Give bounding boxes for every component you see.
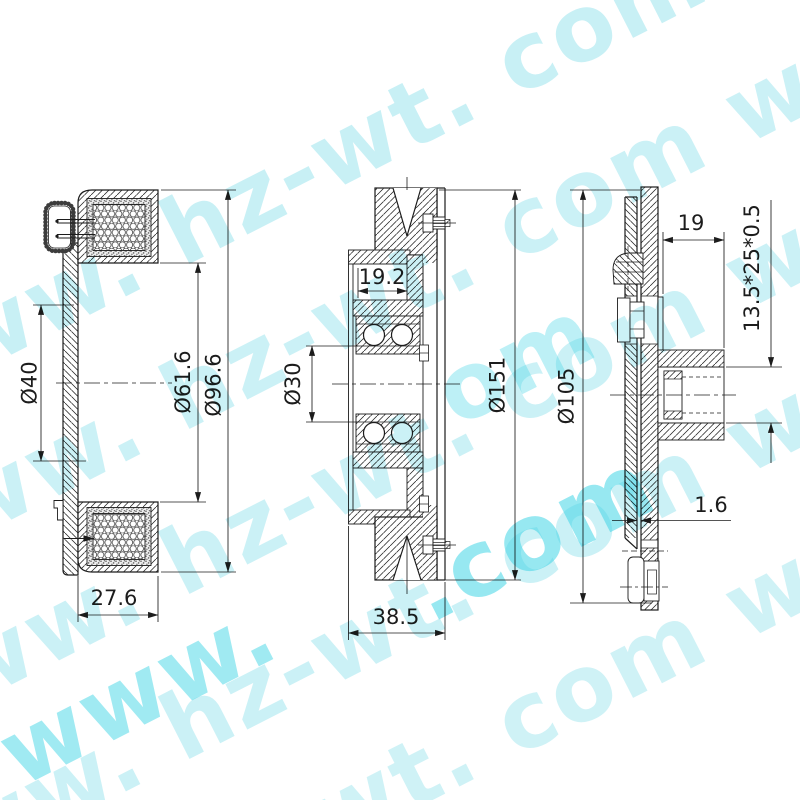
disc-rivet-bottom [418,536,456,554]
coil-view: Ø40 Ø61.6 Ø96.6 27.6 [18,190,237,622]
back-plate [625,197,637,549]
dim-hub-spline: 13.5*25*0.5 [740,204,764,332]
dim-coil-inner: Ø61.6 [171,350,195,413]
dim-pulley-outer: Ø151 [486,357,510,414]
hub-view: Ø105 19 13.5*25*0.5 1.6 [555,187,783,610]
balance-weight [613,246,643,291]
dim-hub-outer: Ø105 [555,368,579,425]
dim-coil-bore: Ø40 [18,361,42,404]
dim-hub-depth: 19 [678,211,705,235]
pulley-view: 19.2 Ø30 Ø151 38.5 [281,177,521,640]
drawing-canvas: Ø40 Ø61.6 Ø96.6 27.6 [0,0,800,800]
bearing-bottom [356,414,420,452]
dim-pulley-width: 38.5 [373,605,420,629]
dim-coil-outer: Ø96.6 [202,353,226,416]
dim-coil-width: 27.6 [91,586,138,610]
disc-rivet-top [418,214,456,232]
hub-disc [641,187,658,610]
dim-pulley-bore: Ø30 [281,362,305,405]
technical-drawing: Ø40 Ø61.6 Ø96.6 27.6 [0,0,800,800]
dim-pulley-hub-depth: 19.2 [359,265,406,289]
bearing-top [356,316,420,354]
dim-hub-air-gap: 1.6 [694,493,727,517]
